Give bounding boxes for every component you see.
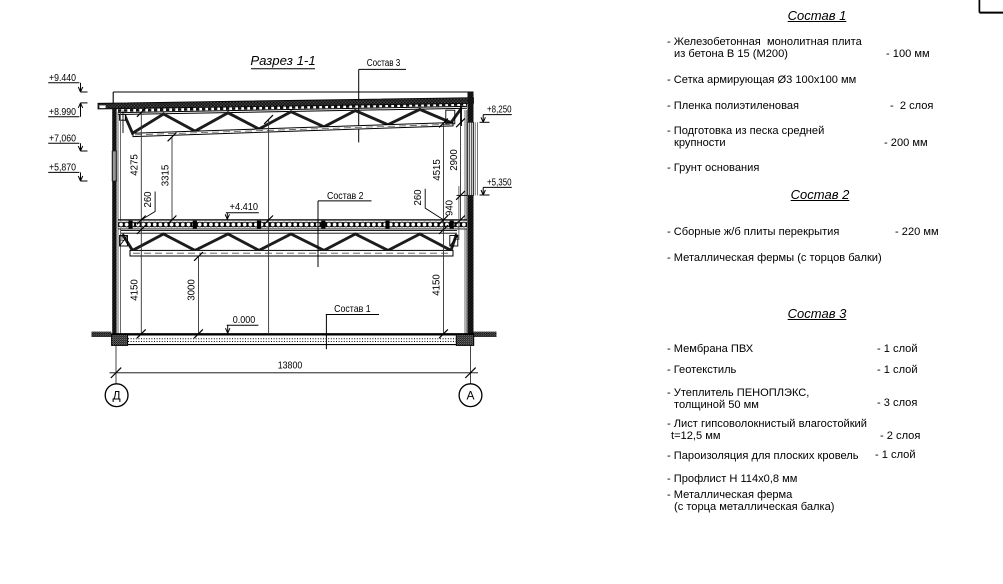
svg-text:+5,350: +5,350 — [487, 177, 512, 188]
svg-text:+8,250: +8,250 — [487, 105, 512, 116]
svg-text:2: 2 — [454, 233, 458, 242]
svg-text:0.000: 0.000 — [233, 315, 256, 326]
svg-text:4515: 4515 — [432, 159, 443, 181]
svg-text:Д: Д — [113, 389, 121, 403]
svg-text:Разрез 1-1: Разрез 1-1 — [250, 53, 315, 68]
svg-text:А: А — [466, 389, 474, 403]
svg-text:2900: 2900 — [449, 149, 460, 171]
svg-text:Состав 1: Состав 1 — [334, 304, 371, 315]
svg-text:Состав 3: Состав 3 — [367, 58, 401, 69]
svg-text:3315: 3315 — [161, 164, 172, 186]
svg-text:4150: 4150 — [130, 279, 141, 301]
svg-text:4150: 4150 — [432, 274, 443, 296]
svg-text:940: 940 — [445, 199, 456, 216]
svg-text:3000: 3000 — [187, 279, 198, 301]
svg-text:260: 260 — [413, 189, 424, 206]
svg-text:+7,060: +7,060 — [49, 133, 76, 144]
svg-text:Состав 2: Состав 2 — [327, 191, 364, 202]
svg-text:4275: 4275 — [130, 154, 141, 176]
svg-text:+4.410: +4.410 — [230, 202, 259, 213]
svg-text:1: 1 — [120, 234, 124, 243]
svg-text:260: 260 — [143, 191, 154, 208]
svg-text:13800: 13800 — [278, 361, 303, 372]
